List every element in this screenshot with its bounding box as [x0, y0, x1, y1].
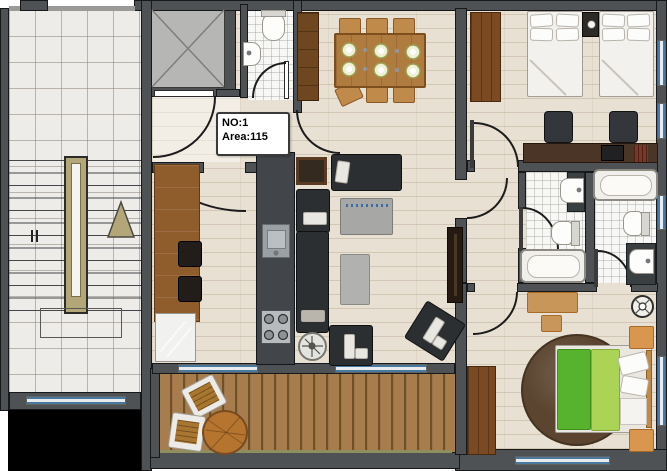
wardrobe: [470, 12, 501, 102]
pillow: [627, 13, 651, 27]
wc-sink: [243, 42, 261, 66]
wall-master-top-b: [517, 283, 597, 292]
sofa-corner: [296, 189, 330, 233]
wall-left: [0, 8, 9, 411]
coffee-table-decor: [346, 204, 389, 207]
bathtub-inner: [600, 175, 652, 196]
stair-railing-slot: [71, 163, 81, 297]
kitchen-sink-basin: [267, 230, 286, 249]
pillow: [627, 28, 650, 42]
bathtub: [520, 249, 586, 283]
dining-chair: [393, 86, 415, 103]
unit-number: NO:1: [222, 116, 284, 130]
pillow: [530, 13, 554, 28]
wall-hall-upper: [455, 8, 467, 180]
pillow: [602, 28, 625, 42]
balcony-edge-line: [158, 450, 452, 453]
coffee-table: [340, 198, 393, 235]
void-area: [8, 410, 141, 471]
desk-chair: [609, 111, 638, 143]
floor-plan: NO:1 Area:115: [0, 0, 667, 471]
master-desk: [527, 292, 578, 313]
window-bedroom-east-2: [657, 103, 666, 139]
stair-landing-outline: [40, 308, 122, 338]
bar-stool: [178, 276, 202, 302]
toilet-tank: [571, 221, 580, 246]
wall-stub: [20, 0, 48, 11]
entry-door-leaf: [154, 90, 214, 97]
stair-railing: [64, 156, 88, 314]
bathroom-sink: [560, 178, 584, 203]
armchair-cushion: [344, 334, 355, 359]
wall-balcony-bottom: [150, 452, 460, 469]
dining-cabinet: [297, 12, 319, 101]
ottoman: [340, 254, 370, 305]
window-kitchen-balcony: [178, 364, 258, 373]
bar-stool: [178, 241, 202, 267]
duvet-light-green: [591, 349, 620, 431]
nightstand: [582, 12, 599, 37]
wall-master-top-a: [467, 283, 475, 292]
wall-master-west: [455, 283, 467, 455]
wc-toilet-tank: [261, 10, 286, 17]
armchair: [329, 325, 373, 366]
window-stairwell: [26, 396, 126, 405]
ensuite-sink: [629, 249, 654, 274]
window-bedroom-east: [657, 40, 666, 86]
toilet-tank: [641, 212, 650, 236]
pillow: [556, 13, 580, 27]
wall-bath-left-a: [518, 172, 526, 209]
unit-label: NO:1 Area:115: [216, 112, 290, 156]
elevator-cab: [151, 9, 225, 88]
balcony-chair-seat: [175, 420, 200, 445]
wall-art: [296, 157, 327, 185]
sofa-pillow: [301, 310, 325, 322]
armchair-cushion: [355, 348, 368, 359]
books: [634, 145, 648, 162]
clock: [587, 20, 596, 29]
master-nightstand: [629, 429, 654, 452]
stove: [261, 310, 291, 344]
bathroom-toilet: [551, 221, 572, 245]
wc-toilet: [262, 13, 285, 41]
pillow: [530, 28, 553, 42]
master-stool: [541, 315, 562, 332]
pillow: [602, 13, 626, 27]
pillow: [556, 28, 579, 42]
ensuite-bathtub: [593, 169, 658, 201]
desk-chair: [544, 111, 573, 143]
side-table: [298, 332, 327, 361]
balcony-chair-seat: [188, 382, 219, 412]
master-wardrobe: [467, 366, 496, 455]
stair-mark: [31, 230, 33, 242]
sofa-pillow: [303, 212, 327, 225]
unit-area: Area:115: [222, 130, 284, 144]
balcony-table: [202, 410, 248, 455]
window-ensuite-east: [657, 195, 666, 230]
tv-cabinet-line: [454, 234, 457, 296]
window-master-south: [515, 456, 610, 465]
dining-chair: [366, 86, 388, 103]
ensuite-toilet: [623, 211, 642, 236]
dining-table: [334, 33, 426, 88]
wall-top: [134, 0, 667, 11]
laptop: [601, 145, 624, 161]
floor-lamp: [631, 295, 654, 318]
tv-cabinet: [447, 227, 463, 303]
balcony-chair: [168, 412, 207, 452]
window-master-east: [657, 356, 666, 426]
bathtub-inner: [527, 255, 580, 278]
wall-balcony-left: [150, 368, 160, 458]
kitchen-sink: [262, 224, 290, 258]
bed-sheet: [620, 398, 647, 425]
duvet-dark-green: [557, 349, 591, 430]
wall-entry: [216, 89, 240, 97]
master-nightstand: [629, 326, 654, 349]
fridge: [155, 313, 196, 362]
stair-mark: [36, 230, 38, 242]
